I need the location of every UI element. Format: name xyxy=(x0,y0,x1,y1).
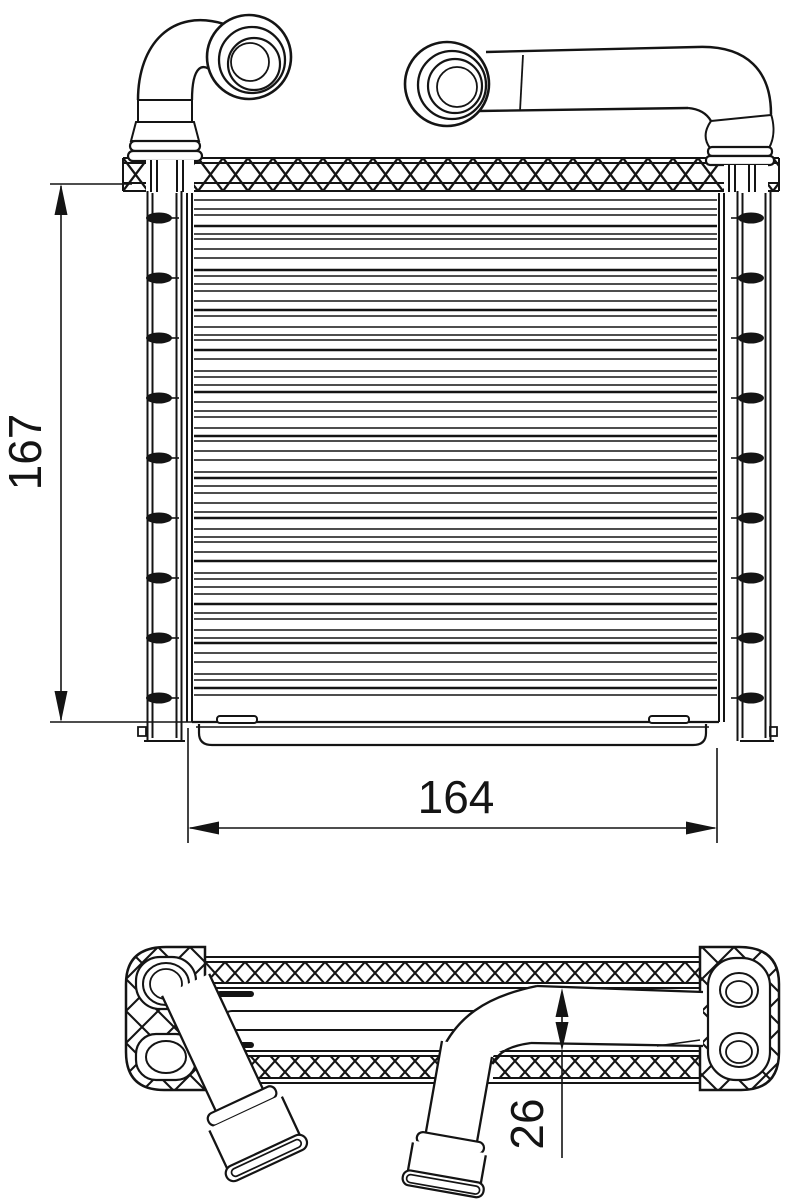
right-end-cap xyxy=(700,947,779,1090)
technical-drawing-page: 167 164 xyxy=(0,0,785,1200)
outlet-elbow-bulb xyxy=(706,114,774,165)
heater-core-drawing: 167 164 xyxy=(0,0,785,1200)
core-width-label: 164 xyxy=(418,771,495,823)
outlet-flange-rings xyxy=(405,42,489,126)
gasket-strip xyxy=(123,158,779,191)
inlet-flange-rings xyxy=(207,15,291,99)
core-height-label: 167 xyxy=(0,414,51,491)
pipe-diameter-label: 26 xyxy=(501,1098,553,1149)
inlet-neck xyxy=(146,160,194,192)
outlet-neck xyxy=(724,165,768,192)
